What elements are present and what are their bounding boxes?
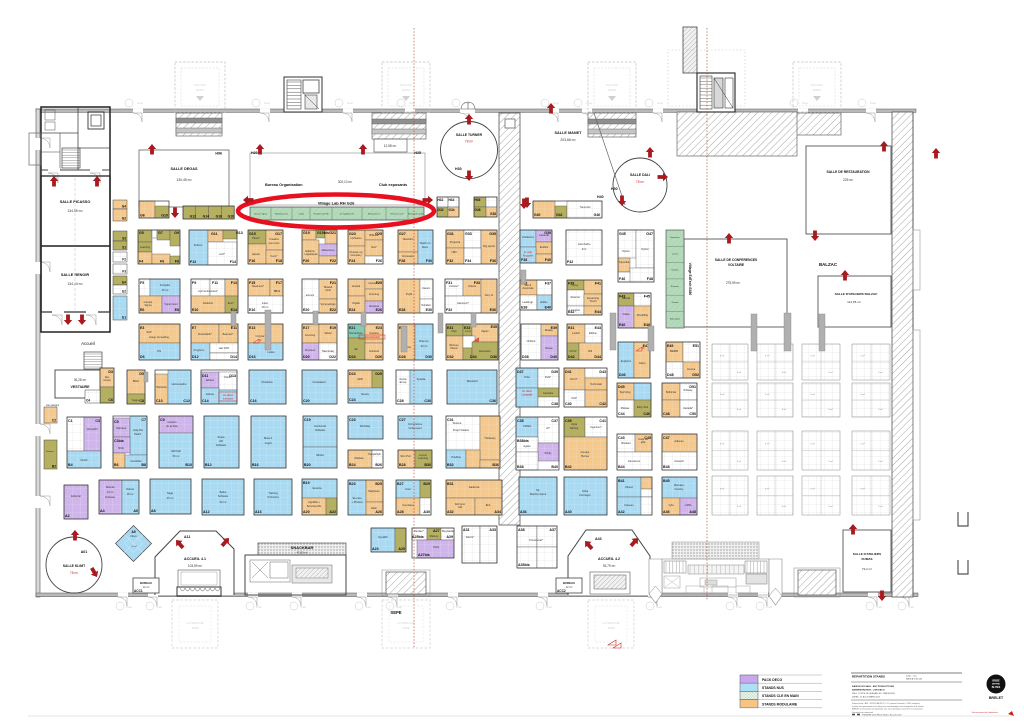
- svg-text:Av. avec: Av. avec: [524, 251, 533, 254]
- svg-text:9 m²: 9 m²: [878, 371, 882, 374]
- svg-text:Nibelis: Nibelis: [316, 453, 324, 457]
- svg-text:A27: A27: [433, 529, 440, 533]
- svg-text:A26: A26: [375, 510, 382, 514]
- svg-text:Odeca: Odeca: [468, 284, 476, 288]
- svg-text:Learning: Learning: [418, 456, 429, 460]
- svg-text:D3: D3: [108, 370, 113, 374]
- svg-text:E11: E11: [231, 326, 237, 330]
- svg-text:D41: D41: [565, 370, 572, 374]
- svg-text:SALLE DE RESTAURATION: SALLE DE RESTAURATION: [827, 170, 871, 174]
- svg-text:Arago Consulting: Arago Consulting: [149, 335, 169, 339]
- svg-text:3 up: 3 up: [656, 605, 662, 609]
- svg-text:G6: G6: [140, 214, 145, 218]
- svg-text:B44: B44: [618, 465, 625, 469]
- svg-text:9 m²: 9 m²: [811, 393, 815, 396]
- svg-text:BRELET. Ils ne peuvent etre re: BRELET. Ils ne peuvent etre reproduits s…: [852, 708, 924, 711]
- svg-text:C9: C9: [160, 418, 165, 422]
- svg-text:LivingAct.: LivingAct.: [569, 308, 581, 312]
- svg-text:Psyfil: Psyfil: [406, 292, 413, 296]
- svg-text:G9: G9: [174, 231, 179, 235]
- svg-text:Groupe: Groupe: [581, 450, 590, 454]
- svg-text:G38: G38: [490, 212, 496, 216]
- svg-text:G18: G18: [228, 215, 235, 219]
- svg-text:Pibas*: Pibas*: [252, 236, 260, 240]
- svg-text:78 m²: 78 m²: [465, 140, 473, 144]
- svg-text:G12: G12: [190, 215, 197, 219]
- svg-text:SIEG : PORTE DE VERSAILLES - P: SIEG : PORTE DE VERSAILLES - PARIS(2014): [852, 692, 895, 695]
- svg-text:4 m HORS GAB.: 4 m HORS GAB.: [186, 622, 204, 625]
- svg-text:Wusma: Wusma: [453, 421, 462, 425]
- svg-text:CGP: CGP: [571, 396, 577, 400]
- svg-text:Ener*: Ener*: [228, 301, 235, 305]
- svg-text:Usil: Usil: [458, 505, 463, 509]
- svg-text:Beeman*: Beeman*: [223, 332, 234, 336]
- svg-text:Plinky: Plinky: [545, 451, 553, 455]
- svg-text:Directskills*: Directskills*: [198, 332, 211, 336]
- svg-text:Pexipras: Pexipras: [369, 304, 380, 308]
- svg-text:Glamscor*: Glamscor*: [457, 301, 469, 305]
- svg-text:Formagro: Formagro: [579, 493, 591, 497]
- svg-text:F18: F18: [276, 259, 282, 263]
- svg-text:E4: E4: [122, 281, 126, 285]
- svg-text:9 m²: 9 m²: [720, 355, 724, 358]
- svg-text:Frogburn...: Frogburn...: [194, 348, 207, 352]
- svg-text:SALLE TURNER: SALLE TURNER: [456, 133, 483, 137]
- svg-text:9 m²: 9 m²: [720, 443, 724, 446]
- svg-text:F9: F9: [192, 281, 196, 285]
- svg-text:Permon Li-fi P: Permon Li-fi P: [390, 213, 404, 216]
- svg-text:Projectra: Projectra: [450, 240, 461, 244]
- svg-text:Bob: Bob: [486, 503, 491, 507]
- svg-text:A46: A46: [663, 510, 670, 514]
- svg-text:C10: C10: [156, 399, 163, 403]
- svg-text:Pilotiau: Pilotiau: [621, 406, 630, 410]
- svg-text:Tempted Lab Rh: Tempted Lab Rh: [313, 213, 329, 216]
- svg-text:9 m²: 9 m²: [737, 408, 741, 411]
- svg-text:A2: A2: [65, 514, 70, 518]
- svg-text:Sage: Sage: [167, 491, 174, 495]
- svg-text:H36: H36: [475, 198, 481, 202]
- svg-text:A36: A36: [520, 510, 527, 514]
- svg-text:E22: E22: [330, 308, 336, 312]
- svg-text:F34: F34: [465, 259, 471, 263]
- svg-text:Lumi: Lumi: [465, 329, 471, 333]
- svg-text:Motivation Ins: Motivation Ins: [275, 213, 288, 216]
- svg-text:G19bis: G19bis: [317, 231, 329, 235]
- svg-text:9 m²: 9 m²: [828, 505, 832, 508]
- svg-text:E10: E10: [192, 308, 198, 312]
- svg-text:D43: D43: [599, 370, 606, 374]
- svg-text:C36bis: C36bis: [523, 424, 532, 428]
- svg-text:Synergologie: Synergologie: [320, 302, 336, 306]
- svg-text:3 up: 3 up: [456, 605, 462, 609]
- svg-text:3 up: 3 up: [736, 605, 742, 609]
- svg-text:9 m²: 9 m²: [720, 488, 724, 491]
- svg-text:B6: B6: [114, 463, 119, 467]
- svg-text:G40: G40: [534, 213, 541, 217]
- svg-text:C3: C3: [95, 419, 100, 423]
- svg-text:B28: B28: [399, 463, 406, 467]
- svg-text:ACCUEIL 4.2: ACCUEIL 4.2: [598, 557, 620, 561]
- svg-text:3 up: 3 up: [766, 605, 772, 609]
- svg-text:C7: C7: [141, 418, 146, 422]
- svg-text:Klevar: Klevar: [450, 346, 457, 350]
- svg-text:Bureau Organisation: Bureau Organisation: [265, 183, 303, 187]
- svg-text:E23: E23: [376, 326, 382, 330]
- svg-text:SALLE D'ATELIERS BALZAC: SALLE D'ATELIERS BALZAC: [835, 292, 878, 296]
- svg-text:D6: D6: [140, 355, 145, 359]
- svg-text:3 up: 3 up: [876, 605, 882, 609]
- svg-text:C12: C12: [183, 399, 190, 403]
- svg-text:3 up: 3 up: [365, 605, 371, 609]
- svg-text:Option: Option: [622, 249, 630, 253]
- svg-text:F24: F24: [349, 259, 355, 263]
- svg-text:Touch: Touch: [590, 299, 597, 303]
- svg-text:Tuponiba: Tuponiba: [619, 260, 630, 264]
- svg-text:Gestion: Gestion: [168, 420, 177, 424]
- svg-text:Point WC: Point WC: [400, 83, 412, 87]
- svg-text:C36: C36: [489, 399, 496, 403]
- svg-text:F4: F4: [139, 260, 143, 264]
- svg-text:F14: F14: [230, 260, 236, 264]
- svg-text:REPARTITION STANDS: REPARTITION STANDS: [852, 675, 885, 679]
- svg-text:RAISON SOCIALE : ANT PRODUCTIO: RAISON SOCIALE : ANT PRODUCTIONS: [852, 685, 895, 688]
- svg-text:Odena: Odena: [126, 487, 134, 491]
- svg-text:H96: H96: [215, 152, 222, 156]
- svg-text:PeopleSph.: PeopleSph.: [368, 452, 382, 456]
- svg-text:C14: C14: [202, 399, 209, 403]
- svg-text:DynaRh: DynaRh: [378, 535, 388, 539]
- svg-text:gille: gille: [641, 440, 646, 444]
- svg-text:C28: C28: [397, 399, 404, 403]
- svg-text:atomco: atomco: [306, 293, 315, 297]
- svg-text:Humanist: Humanist: [369, 281, 380, 285]
- svg-text:A34: A34: [494, 510, 501, 514]
- svg-text:F32: F32: [446, 308, 452, 312]
- svg-text:9 m²: 9 m²: [828, 460, 832, 463]
- svg-text:EXPO: EXPO: [608, 88, 617, 92]
- svg-text:D26: D26: [375, 355, 382, 359]
- svg-text:E26: E26: [376, 308, 382, 312]
- svg-text:12 m²: 12 m²: [143, 585, 150, 589]
- svg-text:Mistertemp: Mistertemp: [322, 248, 335, 252]
- svg-text:Kanoba: Kanoba: [370, 331, 380, 335]
- svg-text:Hav APN: Hav APN: [219, 346, 230, 350]
- svg-text:BUREAU: BUREAU: [140, 581, 152, 585]
- svg-text:Ingenium*: Ingenium*: [590, 425, 602, 429]
- svg-text:tcf*: tcf*: [546, 426, 550, 430]
- svg-text:B10: B10: [185, 463, 192, 467]
- svg-text:D11: D11: [202, 374, 208, 378]
- svg-text:Olps: Olps: [451, 329, 457, 333]
- svg-text:F12: F12: [190, 260, 196, 264]
- svg-text:E17: E17: [303, 326, 309, 330]
- svg-text:Ulinext: Ulinext: [625, 485, 633, 489]
- svg-text:Forquiko: Forquiko: [160, 283, 171, 287]
- svg-text:18 m²: 18 m²: [262, 305, 269, 309]
- svg-text:MCE: MCE: [118, 446, 124, 450]
- svg-text:HR: HR: [219, 439, 223, 443]
- svg-text:Club exposants: Club exposants: [379, 183, 407, 187]
- svg-text:G32: G32: [438, 208, 444, 212]
- svg-text:Execution: Execution: [479, 349, 491, 353]
- svg-text:Talentia: Talentia: [106, 485, 115, 489]
- svg-text:G13: G13: [236, 231, 243, 235]
- svg-text:G35: G35: [489, 232, 496, 236]
- svg-text:Ettena: Ettena: [206, 392, 214, 396]
- svg-text:Accueil: Accueil: [81, 341, 95, 346]
- svg-text:VertuoRh: VertuoRh: [87, 427, 98, 431]
- svg-text:C5: C5: [114, 420, 119, 424]
- svg-text:Teprinting: Teprinting: [619, 390, 631, 394]
- svg-text:Keco*: Keco*: [271, 254, 278, 258]
- svg-text:B30: B30: [424, 463, 431, 467]
- svg-text:Burrea: Burrea: [581, 454, 589, 458]
- svg-text:D48: D48: [667, 373, 674, 377]
- svg-text:B29: B29: [423, 482, 430, 486]
- svg-text:G7: G7: [158, 231, 163, 235]
- svg-text:S3: S3: [122, 237, 126, 241]
- svg-text:A4: A4: [100, 509, 105, 513]
- svg-text:Sytadia: Sytadia: [417, 377, 426, 381]
- svg-text:12,58 m²: 12,58 m²: [384, 144, 397, 148]
- svg-text:DIALOGUES: DIALOGUES: [364, 335, 379, 339]
- svg-text:B31: B31: [447, 482, 454, 486]
- svg-text:C35: C35: [517, 419, 524, 423]
- svg-text:Homeopathe: Homeopathe: [172, 382, 187, 386]
- svg-text:Factory: Factory: [675, 487, 684, 491]
- svg-text:E14: E14: [231, 308, 237, 312]
- svg-text:A11: A11: [184, 535, 190, 539]
- svg-text:Orchestra: Orchestra: [267, 495, 279, 499]
- svg-text:F37: F37: [545, 282, 551, 286]
- svg-text:G27: G27: [399, 232, 406, 236]
- svg-text:Raidera: Raidera: [46, 450, 54, 453]
- svg-text:A22: A22: [329, 510, 336, 514]
- svg-text:D36: D36: [490, 355, 497, 359]
- svg-text:G5: G5: [139, 231, 144, 235]
- svg-text:ME880: ME880: [670, 349, 679, 353]
- svg-text:Code : 1 10: Code : 1 10: [906, 676, 917, 678]
- svg-text:BugGadar: BugGadar: [442, 529, 454, 533]
- svg-text:Cozytar: Cozytar: [256, 334, 265, 338]
- svg-text:insert: insert: [262, 301, 269, 305]
- svg-text:D39: D39: [551, 370, 558, 374]
- svg-text:C6: C6: [108, 398, 113, 402]
- svg-text:3 up: 3 up: [137, 101, 143, 105]
- svg-text:ADMINISTRATION : L'EN DECO: ADMINISTRATION : L'EN DECO: [852, 689, 885, 692]
- svg-text:B26: B26: [375, 463, 382, 467]
- svg-text:E49: E49: [667, 344, 673, 348]
- svg-text:E16: E16: [249, 308, 255, 312]
- svg-text:Zapan: Zapan: [481, 329, 489, 333]
- svg-text:ARD: ARD: [357, 377, 363, 381]
- svg-text:9 m²: 9 m²: [737, 460, 741, 463]
- svg-text:G16: G16: [216, 215, 223, 219]
- svg-text:BLITES: BLITES: [992, 686, 1001, 689]
- svg-text:Sigma: Sigma: [144, 303, 152, 307]
- svg-text:Countless: Countless: [402, 503, 414, 507]
- svg-text:A29: A29: [446, 535, 453, 539]
- svg-text:Village Lab RH G26: Village Lab RH G26: [318, 201, 355, 206]
- svg-text:9 m²: 9 m²: [765, 443, 769, 446]
- svg-text:9 m²: 9 m²: [737, 505, 741, 508]
- svg-text:B20: B20: [304, 463, 311, 467]
- svg-text:3 up: 3 up: [908, 605, 914, 609]
- svg-text:Eurecia: Eurecia: [313, 486, 322, 490]
- svg-text:UBII: UBII: [451, 250, 456, 254]
- svg-text:Associate: Associate: [522, 286, 534, 290]
- svg-text:Gamsicure: Gamsicure: [628, 459, 641, 463]
- svg-text:Mandash Coalfe: Mandash Coalfe: [408, 214, 424, 216]
- svg-text:D24: D24: [349, 355, 356, 359]
- svg-text:E7: E7: [192, 326, 196, 330]
- svg-text:3 up: 3 up: [396, 605, 402, 609]
- svg-text:E40: E40: [545, 306, 551, 310]
- svg-text:D32: D32: [447, 355, 454, 359]
- svg-text:Sunales: Sunales: [421, 303, 431, 307]
- svg-text:Cornerstone: Cornerstone: [408, 422, 423, 426]
- svg-text:F41: F41: [595, 282, 601, 286]
- svg-text:April entreprises*: April entreprises*: [198, 289, 218, 293]
- svg-text:Sodexho: Sodexho: [203, 301, 214, 305]
- svg-text:D46: D46: [619, 373, 626, 377]
- svg-text:F26: F26: [376, 259, 382, 263]
- svg-text:Trinaxo: Trinaxo: [671, 301, 679, 304]
- svg-text:Situfactions T: Situfactions T: [368, 213, 381, 216]
- svg-text:Vary Js: Vary Js: [485, 293, 494, 297]
- svg-text:STANDS MODULAIRE: STANDS MODULAIRE: [762, 702, 798, 706]
- svg-text:G14: G14: [203, 215, 210, 219]
- svg-text:Nooth: Nooth: [81, 458, 88, 462]
- svg-text:G33: G33: [465, 232, 472, 236]
- svg-text:Crosstalent: Crosstalent: [312, 380, 325, 384]
- svg-text:36,28 m²: 36,28 m²: [74, 378, 87, 382]
- svg-text:E44: E44: [595, 310, 601, 314]
- svg-text:S1: S1: [122, 246, 126, 250]
- svg-text:Premium: Premium: [305, 348, 315, 352]
- svg-text:A5: A5: [131, 530, 135, 534]
- svg-text:A42: A42: [618, 510, 625, 514]
- svg-text:G10: G10: [161, 214, 168, 218]
- svg-text:C19: C19: [304, 418, 311, 422]
- svg-text:Hexavine: Hexavine: [670, 237, 680, 239]
- svg-text:3 up: 3 up: [802, 101, 808, 105]
- svg-text:STANDS CLE EN MAIN: STANDS CLE EN MAIN: [762, 694, 799, 698]
- svg-text:F30: F30: [426, 259, 432, 263]
- svg-text:C27: C27: [399, 418, 406, 422]
- svg-text:B16: B16: [252, 463, 259, 467]
- svg-text:A20: A20: [303, 510, 310, 514]
- svg-text:Datring: Datring: [570, 426, 579, 430]
- svg-text:E3: E3: [140, 326, 144, 330]
- svg-text:A23: A23: [372, 547, 379, 551]
- svg-text:Holy-Dis: Holy-Dis: [133, 428, 144, 432]
- svg-text:9 m²: 9 m²: [861, 443, 865, 446]
- svg-text:Meta 4: Meta 4: [264, 436, 272, 440]
- svg-text:B24: B24: [349, 463, 356, 467]
- svg-text:H40: H40: [597, 195, 604, 199]
- svg-text:A28: A28: [397, 510, 404, 514]
- svg-text:Haloda: Haloda: [622, 296, 631, 300]
- svg-text:G4: G4: [122, 205, 126, 209]
- svg-text:A35bis: A35bis: [518, 563, 530, 567]
- svg-text:E24: E24: [349, 308, 355, 312]
- svg-text:F2: F2: [122, 258, 126, 262]
- svg-text:134,44 m²: 134,44 m²: [67, 282, 83, 286]
- svg-text:Voltee: Voltee: [622, 312, 630, 316]
- svg-text:D23: D23: [349, 372, 356, 376]
- svg-text:9 m²: 9 m²: [782, 505, 786, 508]
- svg-text:Devilen*: Devilen*: [414, 529, 424, 533]
- svg-text:C23: C23: [349, 418, 356, 422]
- svg-text:Software: Software: [218, 494, 229, 498]
- svg-text:SALLE MANET: SALLE MANET: [555, 131, 583, 135]
- svg-text:ACCUEIL 4.1: ACCUEIL 4.1: [184, 557, 206, 561]
- svg-text:E36: E36: [490, 308, 496, 312]
- svg-text:B38: B38: [517, 465, 524, 469]
- svg-text:D28: D28: [399, 355, 406, 359]
- svg-text:Useisoft: Useisoft: [674, 459, 684, 463]
- svg-text:E8: E8: [175, 308, 179, 312]
- svg-text:EXPO: EXPO: [402, 88, 411, 92]
- svg-text:3 up: 3 up: [256, 605, 262, 609]
- svg-text:Vyfa: Vyfa: [668, 503, 674, 507]
- svg-text:Nouse: Nouse: [545, 346, 553, 350]
- svg-text:C24: C24: [349, 398, 356, 402]
- svg-text:Covering: Covering: [305, 333, 316, 337]
- svg-text:Vaxiella*: Vaxiella*: [683, 406, 693, 410]
- svg-text:B8: B8: [141, 463, 146, 467]
- svg-text:StartUp Game: StartUp Game: [530, 492, 547, 496]
- svg-text:UNI: UNI: [588, 349, 593, 353]
- svg-text:Software: Software: [105, 495, 116, 499]
- svg-text:Software: Software: [315, 428, 326, 432]
- svg-text:conf*: conf*: [219, 252, 225, 256]
- svg-text:Creative: Creative: [269, 237, 279, 241]
- svg-text:Training: Training: [268, 491, 278, 495]
- svg-text:3 up: 3 up: [347, 101, 353, 105]
- svg-text:A31: A31: [463, 528, 470, 532]
- svg-text:Pixid: Pixid: [433, 545, 439, 549]
- svg-text:VESTIAIRE: VESTIAIRE: [71, 385, 91, 389]
- svg-text:G42: G42: [556, 213, 563, 217]
- svg-text:D22: D22: [329, 355, 336, 359]
- svg-text:EXPO: EXPO: [196, 88, 205, 92]
- svg-text:A6: A6: [133, 509, 138, 513]
- svg-text:Surface locale : APS - 4216 PL: Surface locale : APS - 4216 PLAN (EP 1/1…: [852, 702, 920, 705]
- svg-text:F32: F32: [447, 259, 453, 263]
- svg-text:E28: E28: [399, 308, 405, 312]
- svg-text:G46: G46: [594, 213, 601, 217]
- svg-text:78 m²: 78 m²: [636, 180, 644, 184]
- svg-text:E19: E19: [330, 326, 336, 330]
- svg-text:G2: G2: [122, 217, 126, 221]
- svg-text:D20: D20: [303, 355, 310, 359]
- svg-text:Ubiralo: Ubiralo: [672, 269, 680, 272]
- svg-text:F13: F13: [231, 281, 237, 285]
- svg-text:Lifefactory: Lifefactory: [522, 235, 535, 239]
- svg-text:4 m HORS GAB.: 4 m HORS GAB.: [602, 622, 620, 625]
- svg-text:360Lear.: 360Lear.: [369, 233, 379, 237]
- svg-text:B36: B36: [492, 463, 499, 467]
- svg-text:Rei IT: Rei IT: [571, 377, 578, 381]
- svg-text:79,2 m²: 79,2 m²: [862, 567, 872, 571]
- svg-text:E6: E6: [140, 308, 144, 312]
- svg-text:DUMAS: DUMAS: [862, 557, 873, 561]
- svg-text:BRISE: BRISE: [992, 680, 1000, 683]
- svg-text:G45: G45: [619, 232, 626, 236]
